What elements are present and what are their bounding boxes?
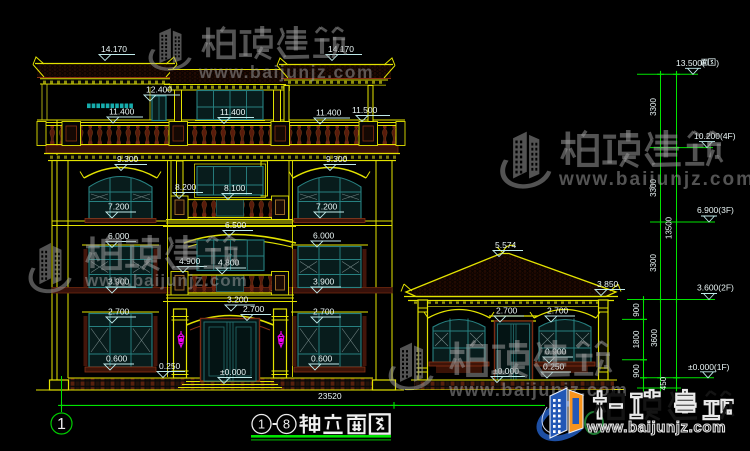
svg-text:6.900(3F): 6.900(3F) bbox=[697, 205, 734, 215]
svg-text:14.170: 14.170 bbox=[101, 44, 127, 54]
svg-text:11.500: 11.500 bbox=[352, 105, 378, 115]
svg-text:3300: 3300 bbox=[649, 98, 658, 116]
svg-text:9.300: 9.300 bbox=[117, 154, 139, 164]
svg-text:3.200: 3.200 bbox=[227, 295, 249, 305]
svg-text:450: 450 bbox=[659, 376, 668, 390]
svg-text:12.400: 12.400 bbox=[146, 85, 172, 95]
svg-text:1: 1 bbox=[57, 416, 66, 433]
svg-text:www.baijunjz.com: www.baijunjz.com bbox=[198, 62, 374, 82]
svg-text:3.850: 3.850 bbox=[597, 279, 619, 289]
svg-text:3.600(2F): 3.600(2F) bbox=[697, 283, 734, 293]
svg-text:±0.000: ±0.000 bbox=[220, 367, 246, 377]
svg-text:3.900: 3.900 bbox=[313, 277, 335, 287]
svg-text:23520: 23520 bbox=[318, 391, 342, 401]
svg-text:0.600: 0.600 bbox=[311, 354, 333, 364]
svg-text:www.baijunjz.com: www.baijunjz.com bbox=[84, 271, 248, 290]
svg-text:8: 8 bbox=[283, 417, 290, 432]
svg-text:1: 1 bbox=[258, 417, 265, 432]
svg-text:±0.000(1F): ±0.000(1F) bbox=[688, 362, 730, 372]
svg-text:): ) bbox=[716, 58, 719, 68]
svg-text:2.700: 2.700 bbox=[108, 307, 130, 317]
svg-text:13500: 13500 bbox=[665, 216, 674, 239]
svg-text:6.000: 6.000 bbox=[313, 231, 335, 241]
svg-text:9.300: 9.300 bbox=[326, 154, 348, 164]
svg-text:0.600: 0.600 bbox=[106, 354, 128, 364]
svg-text:www.baijunjz.com: www.baijunjz.com bbox=[586, 419, 726, 436]
svg-text:900: 900 bbox=[632, 364, 641, 378]
svg-text:2.700: 2.700 bbox=[313, 307, 335, 317]
svg-text:www.baijunjz.com: www.baijunjz.com bbox=[558, 169, 750, 190]
svg-text:6.500: 6.500 bbox=[225, 220, 247, 230]
svg-text:2.700: 2.700 bbox=[547, 306, 569, 316]
svg-text:2.700: 2.700 bbox=[243, 304, 265, 314]
svg-text:7.200: 7.200 bbox=[108, 202, 130, 212]
svg-text:11.400: 11.400 bbox=[109, 107, 135, 117]
svg-text:3300: 3300 bbox=[649, 254, 658, 272]
svg-text:900: 900 bbox=[632, 303, 641, 317]
svg-text:7.200: 7.200 bbox=[316, 202, 338, 212]
svg-text:2.700: 2.700 bbox=[496, 306, 518, 316]
svg-text:8.100: 8.100 bbox=[224, 183, 246, 193]
svg-text:3600: 3600 bbox=[650, 329, 659, 347]
svg-text:1800: 1800 bbox=[632, 330, 641, 348]
svg-text:11.400: 11.400 bbox=[316, 108, 342, 118]
svg-text:8.200: 8.200 bbox=[175, 182, 197, 192]
svg-text:0.250: 0.250 bbox=[159, 361, 181, 371]
svg-text:5.574: 5.574 bbox=[495, 240, 517, 250]
svg-text:13.500(: 13.500( bbox=[676, 58, 705, 68]
svg-text:11.400: 11.400 bbox=[220, 107, 246, 117]
